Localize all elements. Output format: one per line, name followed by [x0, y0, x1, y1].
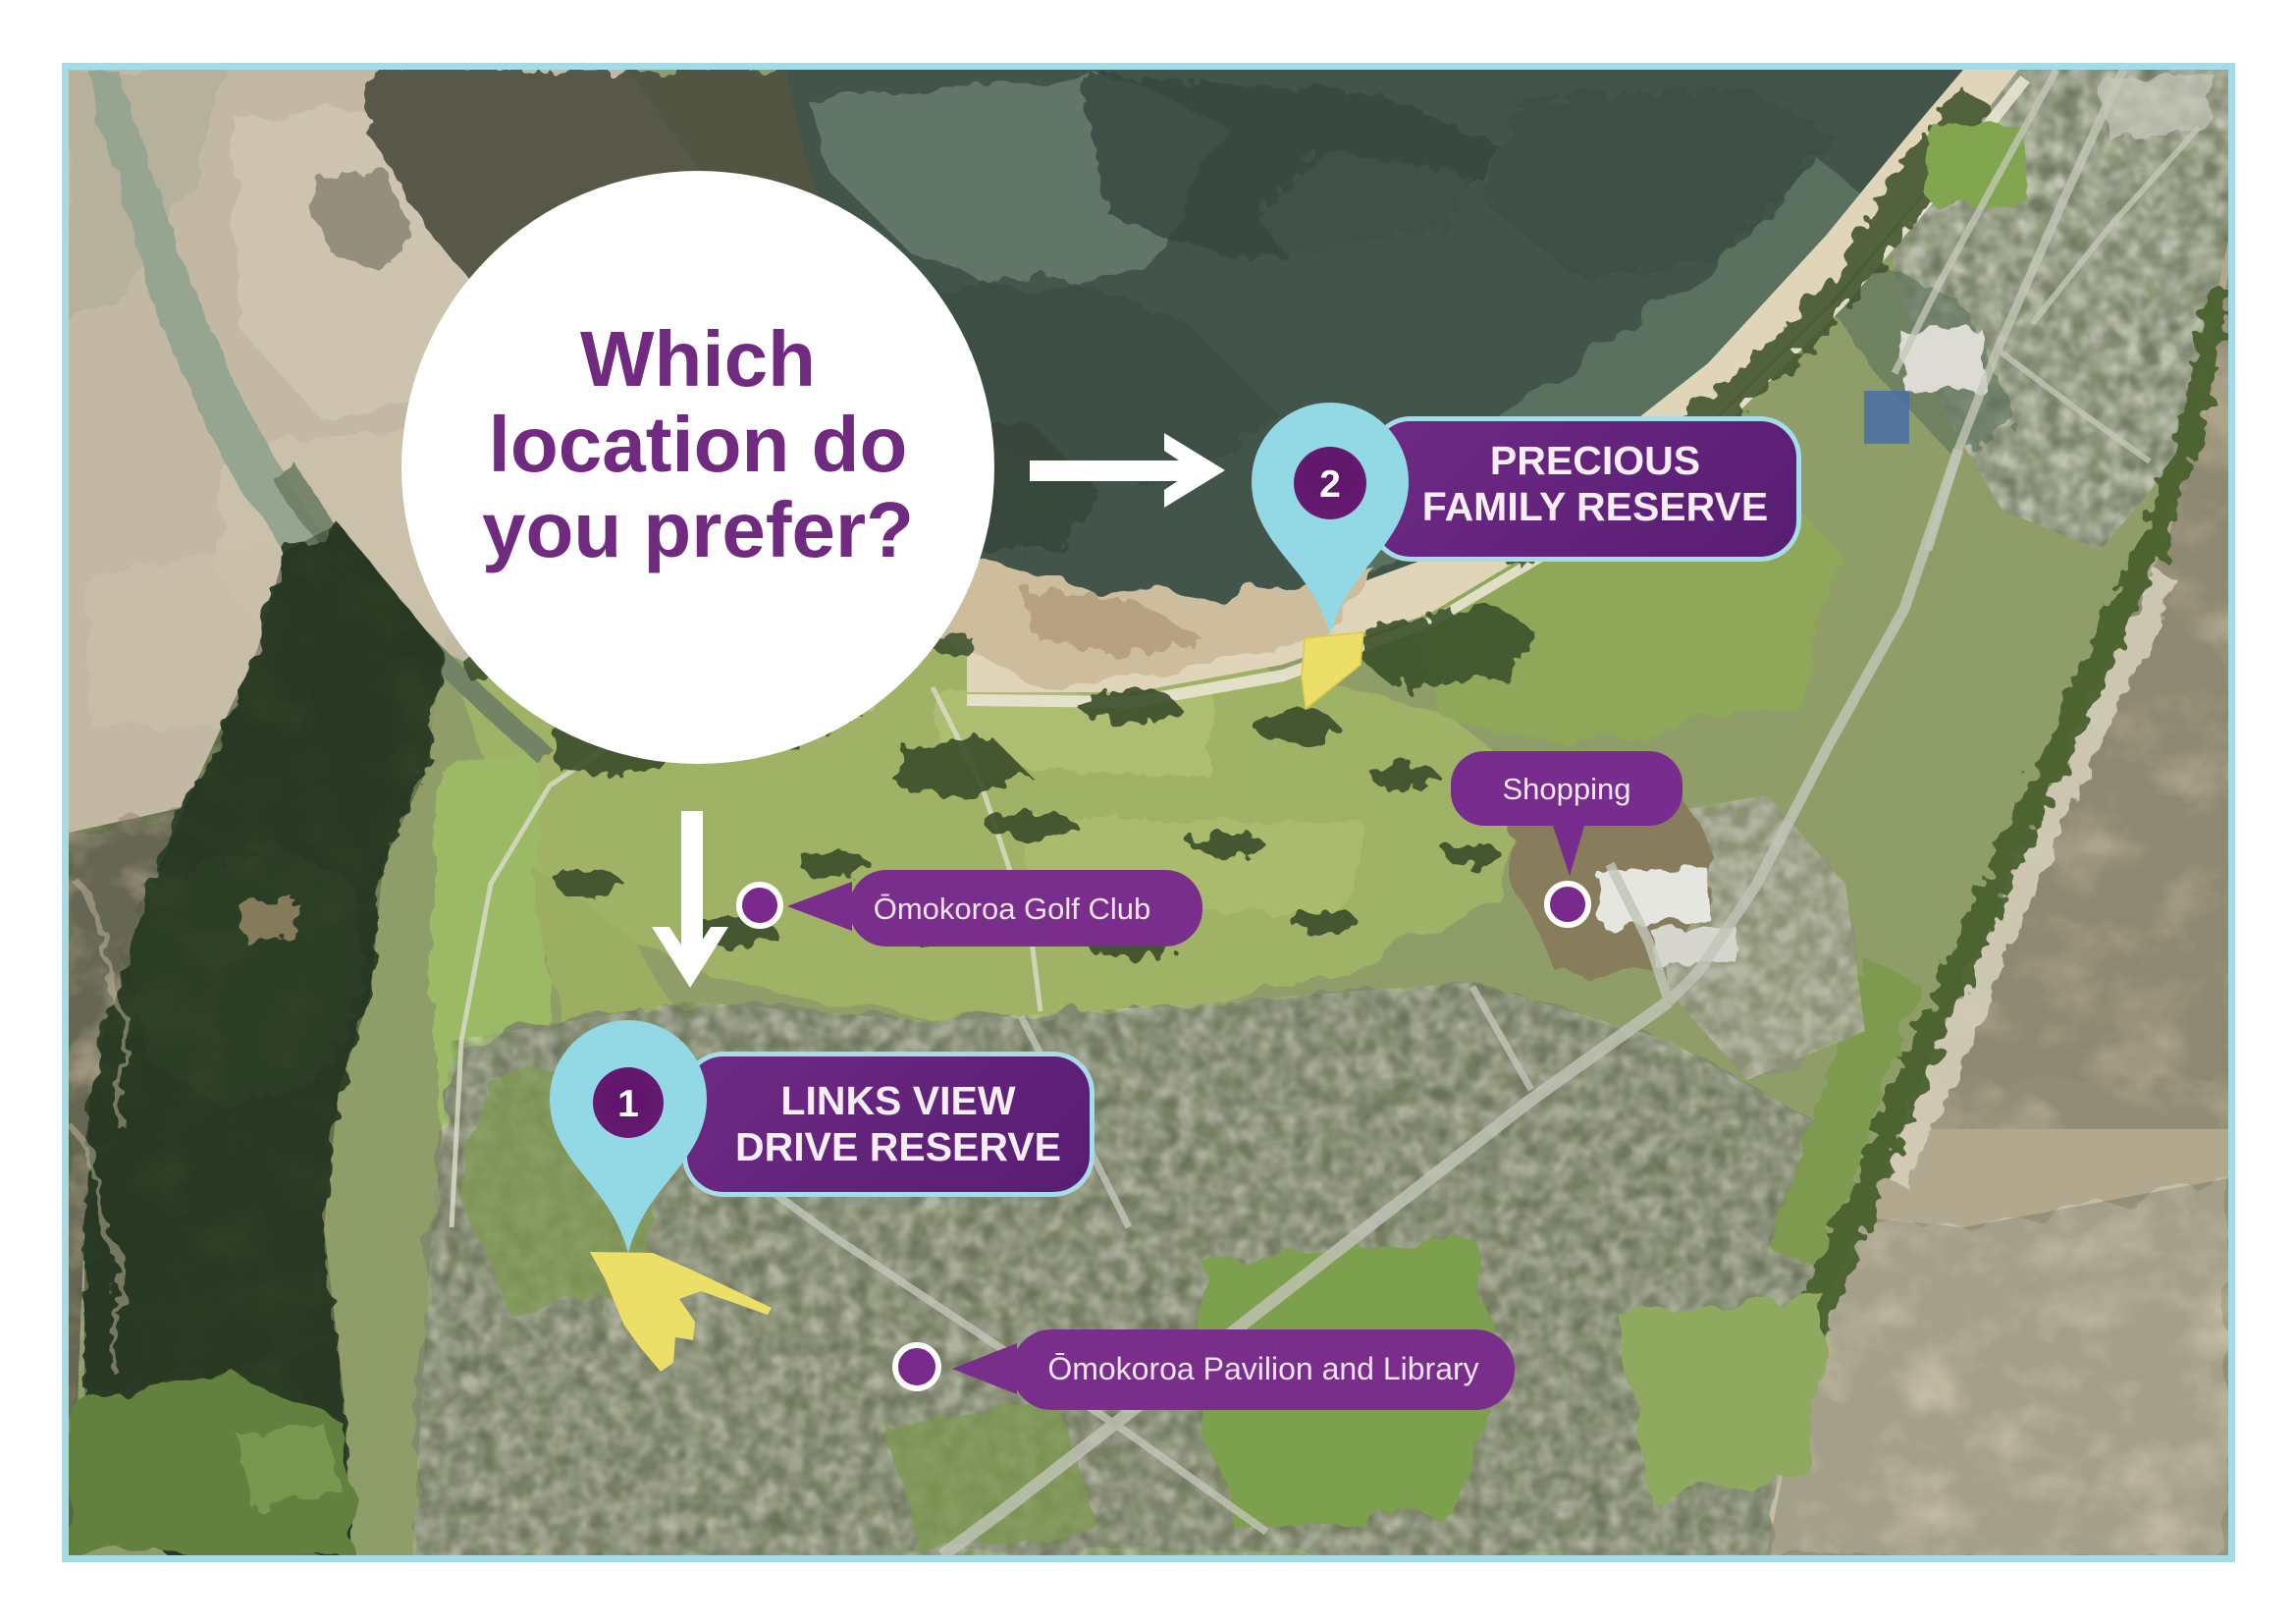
svg-text:1: 1	[617, 1083, 639, 1125]
svg-text:2: 2	[1319, 463, 1341, 506]
